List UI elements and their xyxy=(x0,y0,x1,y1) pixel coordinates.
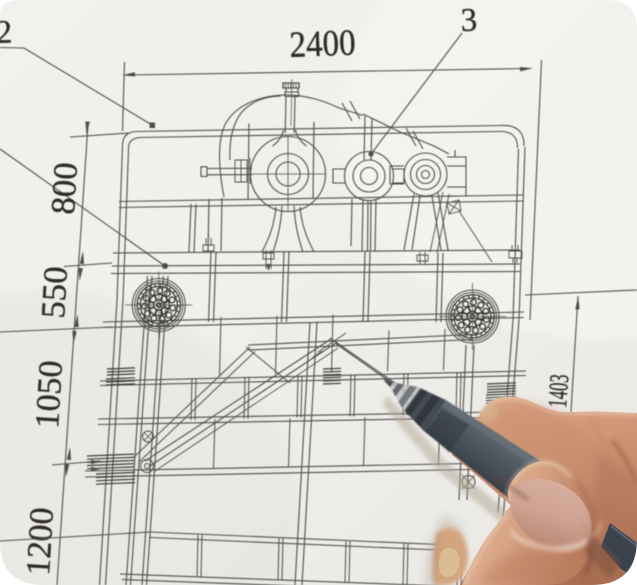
svg-text:1050: 1050 xyxy=(29,359,70,429)
svg-text:550: 550 xyxy=(35,265,75,319)
svg-text:800: 800 xyxy=(45,161,85,215)
svg-text:1200: 1200 xyxy=(20,506,61,576)
svg-text:3: 3 xyxy=(460,2,478,39)
svg-text:2: 2 xyxy=(0,14,13,51)
svg-text:1403: 1403 xyxy=(542,373,574,408)
svg-text:2400: 2400 xyxy=(289,22,357,66)
